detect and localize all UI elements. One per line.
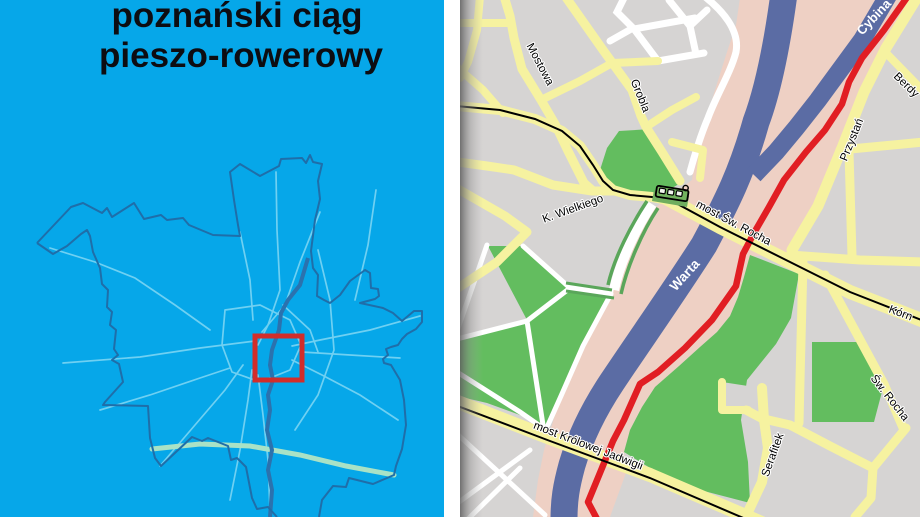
svg-text:pieszo-rowerowy: pieszo-rowerowy [99, 36, 383, 75]
svg-text:poznański ciąg: poznański ciąg [112, 0, 363, 35]
